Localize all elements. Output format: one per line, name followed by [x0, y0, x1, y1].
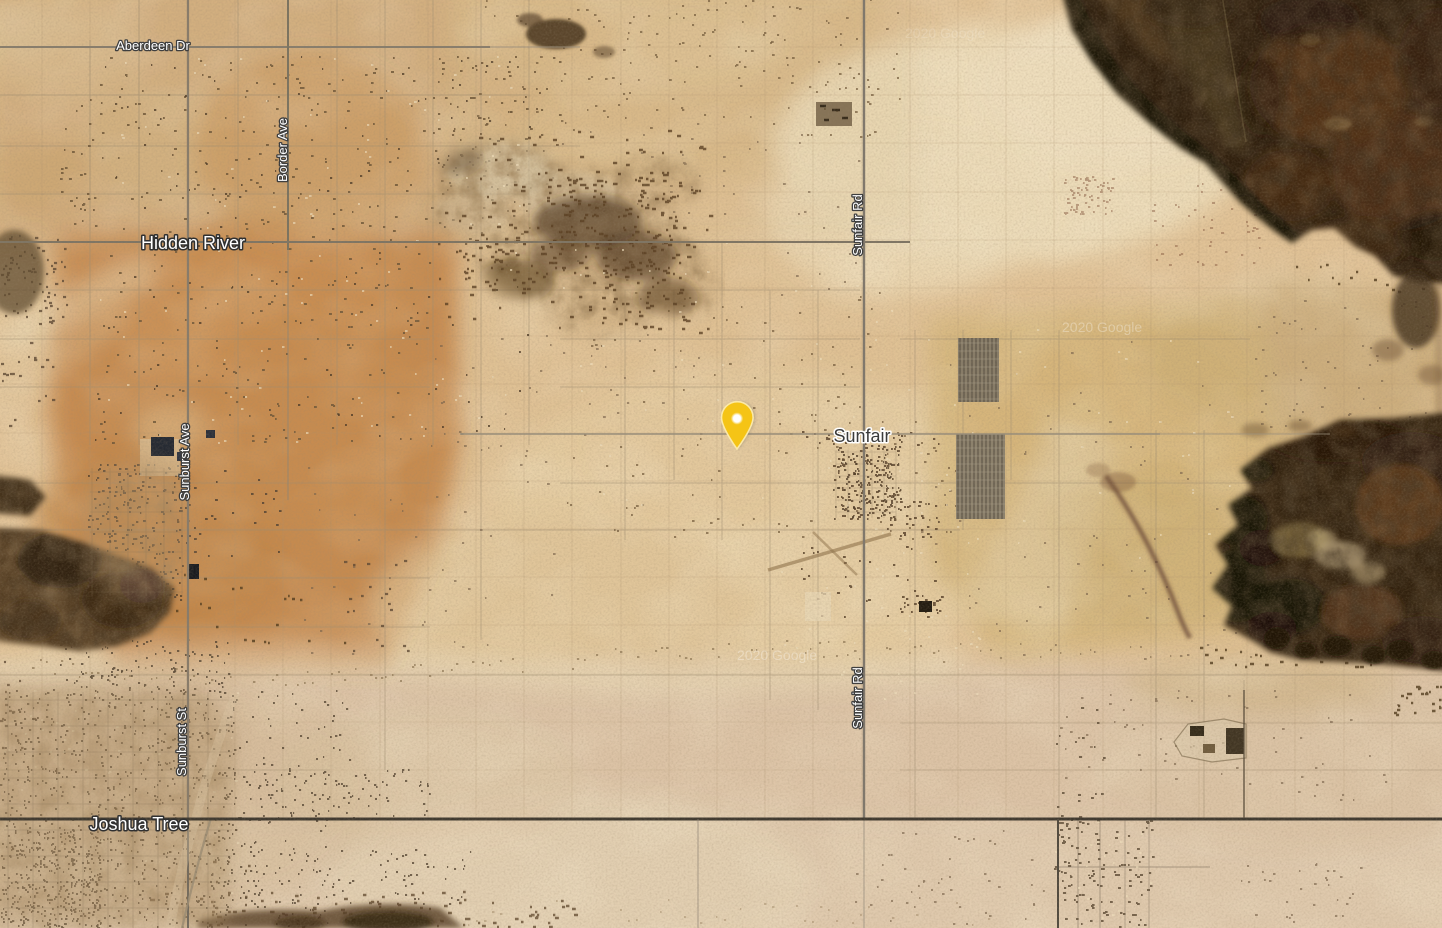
svg-text:Aberdeen Dr: Aberdeen Dr: [116, 38, 190, 53]
svg-text:2020 Google: 2020 Google: [905, 25, 985, 41]
svg-text:Hidden River: Hidden River: [141, 233, 245, 253]
svg-text:2020 Google: 2020 Google: [1062, 319, 1142, 335]
svg-text:Sunfair: Sunfair: [833, 426, 890, 446]
svg-text:Border Ave: Border Ave: [275, 118, 290, 182]
svg-text:Joshua Tree: Joshua Tree: [89, 814, 188, 834]
svg-text:Sunburst Ave: Sunburst Ave: [177, 423, 192, 500]
svg-text:Sunburst St: Sunburst St: [174, 708, 189, 776]
svg-text:Sunfair Rd: Sunfair Rd: [850, 667, 865, 728]
svg-text:2020 Google: 2020 Google: [737, 647, 817, 663]
svg-text:Sunfair Rd: Sunfair Rd: [850, 194, 865, 255]
